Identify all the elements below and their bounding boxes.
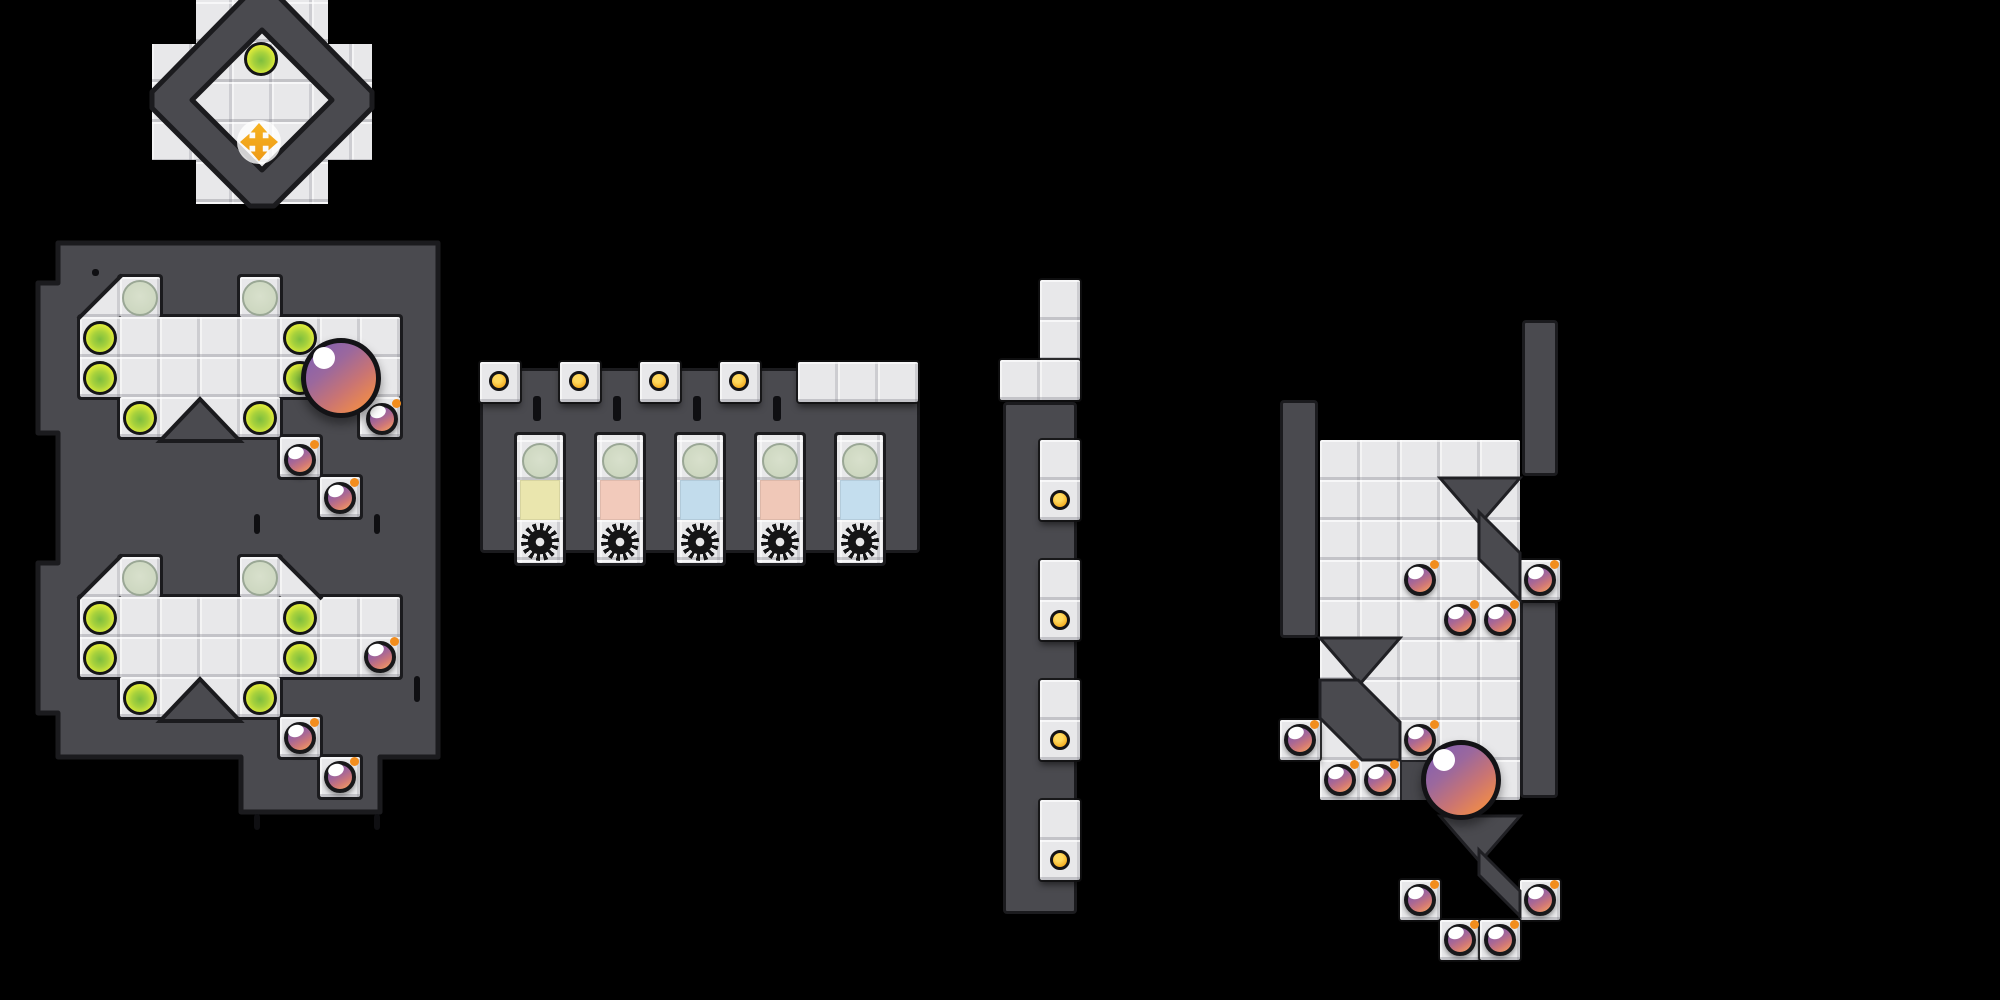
bomb[interactable] [1484,604,1516,636]
gear-icon [601,523,639,561]
yellow-dot[interactable] [569,371,589,391]
gear-icon [521,523,559,561]
green-orb[interactable] [243,681,277,715]
green-orb[interactable] [123,681,157,715]
bomb[interactable] [1404,564,1436,596]
green-orb[interactable] [83,601,117,635]
player-sphere[interactable] [1421,740,1501,820]
green-orb[interactable] [283,601,317,635]
player-sphere[interactable] [301,338,381,418]
green-orb[interactable] [83,321,117,355]
bomb[interactable] [364,641,396,673]
bomb[interactable] [324,761,356,793]
bomb[interactable] [1524,884,1556,916]
green-orb[interactable] [83,361,117,395]
yellow-dot[interactable] [729,371,749,391]
bomb[interactable] [1444,924,1476,956]
slot-color-window [760,480,800,520]
bomb[interactable] [1324,764,1356,796]
ghost-orb [762,443,798,479]
green-orb[interactable] [283,641,317,675]
bomb[interactable] [1404,884,1436,916]
yellow-dot[interactable] [649,371,669,391]
slot-color-window [680,480,720,520]
bomb[interactable] [1484,924,1516,956]
green-orb[interactable] [244,42,278,76]
gear-icon [761,523,799,561]
move-cross-icon[interactable] [237,120,281,164]
ghost-orb [242,280,278,316]
bomb[interactable] [1404,724,1436,756]
slot-color-window [520,480,560,520]
green-orb[interactable] [83,641,117,675]
ghost-orb [242,560,278,596]
green-orb[interactable] [123,401,157,435]
yellow-dot[interactable] [1050,610,1070,630]
east-map-wall-chevrons [0,0,2000,1000]
bomb[interactable] [324,482,356,514]
slot-color-window [600,480,640,520]
ghost-orb [602,443,638,479]
bomb[interactable] [1284,724,1316,756]
ghost-orb [682,443,718,479]
bomb[interactable] [1444,604,1476,636]
green-orb[interactable] [243,401,277,435]
gear-icon [841,523,879,561]
yellow-dot[interactable] [1050,490,1070,510]
slot-color-window [840,480,880,520]
yellow-dot[interactable] [489,371,509,391]
ghost-orb [122,560,158,596]
bomb[interactable] [284,444,316,476]
game-stage [0,0,2000,1000]
ghost-orb [522,443,558,479]
bomb[interactable] [366,403,398,435]
yellow-dot[interactable] [1050,730,1070,750]
gear-icon [681,523,719,561]
bomb[interactable] [1524,564,1556,596]
bomb[interactable] [284,722,316,754]
ghost-orb [122,280,158,316]
ghost-orb [842,443,878,479]
bomb[interactable] [1364,764,1396,796]
yellow-dot[interactable] [1050,850,1070,870]
